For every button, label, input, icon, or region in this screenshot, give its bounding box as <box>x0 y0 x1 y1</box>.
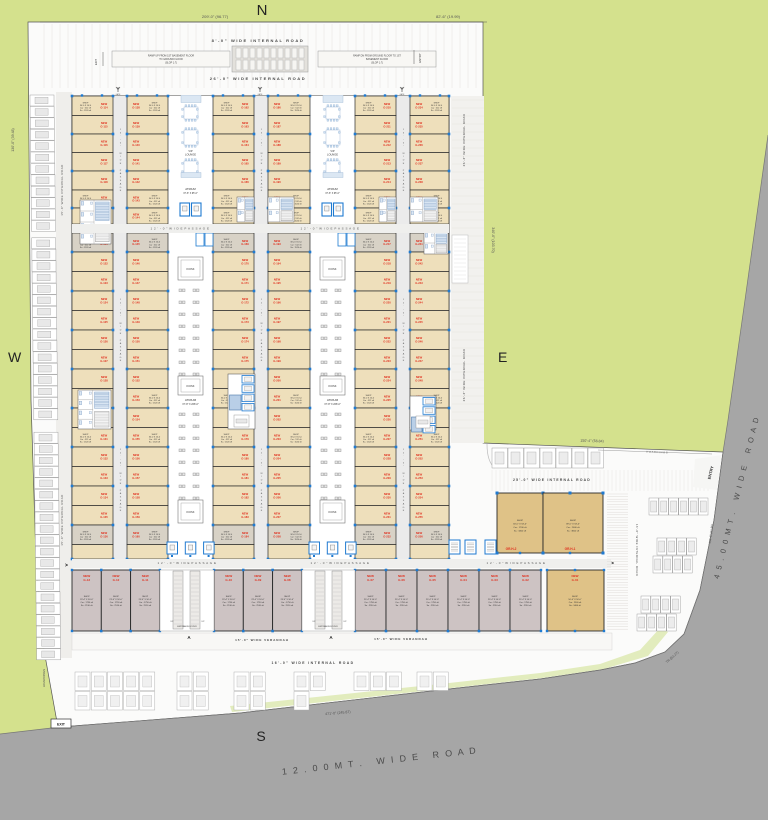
svg-text:HOARDINGS: HOARDINGS <box>42 669 46 687</box>
svg-text:G-149: G-149 <box>132 320 140 324</box>
svg-text:ENTRY: ENTRY <box>418 53 422 63</box>
svg-text:34'-0" X 53'-0": 34'-0" X 53'-0" <box>513 524 527 526</box>
svg-text:Sa : 1520 sft: Sa : 1520 sft <box>363 538 375 541</box>
svg-text:Car : 512 sft: Car : 512 sft <box>291 107 302 110</box>
svg-text:23'-4" X 50'-0": 23'-4" X 50'-0" <box>364 599 377 601</box>
svg-text:G-190: G-190 <box>273 180 281 184</box>
svg-text:G-246: G-246 <box>415 339 423 343</box>
svg-text:SHOP: SHOP <box>399 596 406 598</box>
svg-text:G-08: G-08 <box>284 578 291 582</box>
svg-text:ENTRANCE FOYER: ENTRANCE FOYER <box>177 625 197 628</box>
svg-text:Sa : 1520 sft: Sa : 1520 sft <box>221 538 233 541</box>
svg-text:30'-0 X 10'-0: 30'-0 X 10'-0 <box>221 436 233 438</box>
svg-text:UP: UP <box>201 621 205 623</box>
svg-text:30'-0 X 10'-0: 30'-0 X 10'-0 <box>290 436 302 438</box>
svg-text:KIOSK: KIOSK <box>329 267 337 271</box>
svg-text:G-159: G-159 <box>132 515 140 519</box>
svg-text:G-155: G-155 <box>132 437 140 441</box>
svg-text:G-133: G-133 <box>100 476 108 480</box>
svg-text:VIP: VIP <box>330 149 334 153</box>
svg-text:G-151: G-151 <box>132 359 140 363</box>
svg-text:SHOP: SHOP <box>226 596 233 598</box>
svg-text:15'-0" WIDE INTERNAL ROAD: 15'-0" WIDE INTERNAL ROAD <box>60 494 64 546</box>
svg-text:G-153: G-153 <box>132 398 140 402</box>
svg-text:150'-4" (56.84): 150'-4" (56.84) <box>580 439 604 444</box>
svg-text:15'-0" WIDE VERANDAH: 15'-0" WIDE VERANDAH <box>235 638 289 642</box>
svg-text:SHOP: SHOP <box>430 596 437 598</box>
svg-text:G-202: G-202 <box>273 417 281 421</box>
svg-text:Sa : 1520 sft: Sa : 1520 sft <box>149 246 161 249</box>
svg-text:Sa : 1520 sft: Sa : 1520 sft <box>149 202 161 205</box>
svg-text:Car : 512 sft: Car : 512 sft <box>221 536 232 539</box>
svg-text:SHOP: SHOP <box>461 596 468 598</box>
svg-text:23'-4" X 50'-0": 23'-4" X 50'-0" <box>488 599 501 601</box>
svg-text:KIOSK: KIOSK <box>329 384 337 388</box>
svg-text:Car : 512 sft: Car : 512 sft <box>149 243 160 246</box>
svg-text:Car : 1750 sft: Car : 1750 sft <box>139 601 152 604</box>
svg-text:G-114: G-114 <box>100 105 108 109</box>
svg-text:UP: UP <box>312 621 316 623</box>
svg-text:G-146: G-146 <box>132 261 140 265</box>
svg-text:G-232: G-232 <box>383 534 391 538</box>
svg-text:Sa : 1520 sft: Sa : 1520 sft <box>149 441 161 444</box>
svg-text:VIP: VIP <box>188 149 192 153</box>
svg-text:Car : 512 sft: Car : 512 sft <box>80 107 91 110</box>
svg-text:Sa : 1520 sft: Sa : 1520 sft <box>290 246 302 249</box>
svg-text:G-141: G-141 <box>132 161 140 165</box>
svg-text:W: W <box>8 349 22 365</box>
svg-text:Sa : 2510 sft: Sa : 2510 sft <box>81 604 93 607</box>
svg-text:G-208: G-208 <box>273 534 281 538</box>
svg-text:G-241: G-241 <box>415 242 423 246</box>
svg-text:G-243: G-243 <box>415 281 423 285</box>
svg-text:15'-0" WIDE VERANDAH: 15'-0" WIDE VERANDAH <box>374 637 428 641</box>
svg-text:1 2 ' - 0 " W I D E P A S: 1 2 ' - 0 " W I D E P A S S A G E <box>311 561 370 565</box>
svg-text:G-123: G-123 <box>100 281 108 285</box>
svg-text:Sa : 2510 sft: Sa : 2510 sft <box>110 604 122 607</box>
svg-text:G-172: G-172 <box>241 300 249 304</box>
svg-text:G-251: G-251 <box>415 437 423 441</box>
svg-text:LOUNGE: LOUNGE <box>185 153 196 157</box>
svg-text:G-181: G-181 <box>241 476 249 480</box>
svg-text:GATE: GATE <box>400 93 406 96</box>
svg-text:23'-4" X 50'-0": 23'-4" X 50'-0" <box>109 599 122 601</box>
svg-text:Sa : 2510 sft: Sa : 2510 sft <box>281 604 293 607</box>
svg-text:26'-3" WIDE INTERNAL ROAD: 26'-3" WIDE INTERNAL ROAD <box>462 348 466 401</box>
svg-text:16'-0" WIDE INTERNAL ROAD: 16'-0" WIDE INTERNAL ROAD <box>635 524 639 576</box>
svg-text:Car : 512 sft: Car : 512 sft <box>363 536 374 539</box>
svg-text:G-134: G-134 <box>100 495 108 499</box>
svg-text:SHOP: SHOP <box>572 596 579 598</box>
svg-text:Car : 512 sft: Car : 512 sft <box>291 243 302 246</box>
svg-text:Sa : 3600 sft: Sa : 3600 sft <box>567 530 580 533</box>
svg-text:30'-0 X 10'-0: 30'-0 X 10'-0 <box>80 436 92 438</box>
svg-text:G-244: G-244 <box>415 300 423 304</box>
svg-text:Car : 512 sft: Car : 512 sft <box>221 217 232 220</box>
svg-text:G-136: G-136 <box>100 534 108 538</box>
svg-text:23'-4" X 50'-0": 23'-4" X 50'-0" <box>281 599 294 601</box>
svg-text:SHOP: SHOP <box>224 102 230 104</box>
svg-text:Car : 1750 sft: Car : 1750 sft <box>222 601 235 604</box>
svg-text:G-253: G-253 <box>415 476 423 480</box>
svg-text:GATE: GATE <box>116 93 122 96</box>
svg-text:G-162: G-162 <box>241 105 249 109</box>
svg-text:30'-0 X 10'-0: 30'-0 X 10'-0 <box>363 436 375 438</box>
svg-text:G-138: G-138 <box>132 105 140 109</box>
svg-text:Sa : 2510 sft: Sa : 2510 sft <box>489 604 501 607</box>
svg-text:G-247: G-247 <box>415 359 423 363</box>
svg-text:G-07: G-07 <box>367 578 374 582</box>
svg-text:Sa : 1520 sft: Sa : 1520 sft <box>363 246 375 249</box>
svg-text:Sa : 1520 sft: Sa : 1520 sft <box>363 109 375 112</box>
svg-text:G-201: G-201 <box>273 398 281 402</box>
svg-text:Sa : 2510 sft: Sa : 2510 sft <box>427 604 439 607</box>
svg-text:G-122: G-122 <box>100 261 108 265</box>
svg-text:37'-8" X 268'-0": 37'-8" X 268'-0" <box>324 403 341 406</box>
svg-text:340'-0" (103.70): 340'-0" (103.70) <box>491 227 495 253</box>
svg-text:Sa : 1520 sft: Sa : 1520 sft <box>80 109 92 112</box>
svg-text:82'-6" (19.99): 82'-6" (19.99) <box>436 14 461 19</box>
svg-text:SHOP: SHOP <box>368 596 375 598</box>
svg-text:G-220: G-220 <box>383 300 391 304</box>
svg-text:G-170: G-170 <box>241 261 249 265</box>
svg-text:G-160: G-160 <box>132 534 140 538</box>
svg-text:G-05: G-05 <box>429 578 436 582</box>
svg-text:30'-0 X 10'-0: 30'-0 X 10'-0 <box>290 397 302 399</box>
svg-text:23'-4" X 50'-0": 23'-4" X 50'-0" <box>457 599 470 601</box>
svg-text:G-175: G-175 <box>241 359 249 363</box>
svg-text:G-238: G-238 <box>415 180 423 184</box>
svg-text:G-213: G-213 <box>383 161 391 165</box>
svg-text:G-02: G-02 <box>522 578 529 582</box>
svg-text:G-180: G-180 <box>241 456 249 460</box>
svg-text:Car : 512 sft: Car : 512 sft <box>80 536 91 539</box>
svg-text:G-237: G-237 <box>415 161 423 165</box>
svg-text:G-235: G-235 <box>415 124 423 128</box>
svg-text:Car : 512 sft: Car : 512 sft <box>149 200 160 203</box>
svg-text:G-158: G-158 <box>132 495 140 499</box>
svg-text:Car : 512 sft: Car : 512 sft <box>431 107 442 110</box>
svg-text:G-118: G-118 <box>100 180 108 184</box>
svg-text:209'-0" (96.77): 209'-0" (96.77) <box>202 14 229 19</box>
svg-text:UP: UP <box>170 621 174 623</box>
svg-text:SHOP: SHOP <box>255 596 262 598</box>
svg-text:G: G <box>120 357 122 359</box>
svg-text:G: G <box>120 187 122 189</box>
svg-text:Sa : 1520 sft: Sa : 1520 sft <box>80 246 92 249</box>
svg-text:30'-0 X 10'-0: 30'-0 X 10'-0 <box>363 397 375 399</box>
svg-text:G-145: G-145 <box>132 242 140 246</box>
svg-text:Car : 512 sft: Car : 512 sft <box>149 107 160 110</box>
svg-text:G-148: G-148 <box>132 300 140 304</box>
svg-text:Sa : 1520 sft: Sa : 1520 sft <box>221 219 233 222</box>
svg-text:G-139: G-139 <box>132 124 140 128</box>
svg-text:Sa : 3400 sft: Sa : 3400 sft <box>514 530 527 533</box>
svg-text:G-166: G-166 <box>241 180 249 184</box>
svg-text:37'-6" X 95'-0": 37'-6" X 95'-0" <box>183 193 198 195</box>
svg-text:Sa : 1520 sft: Sa : 1520 sft <box>363 219 375 222</box>
svg-text:G-227: G-227 <box>383 437 391 441</box>
svg-text:G-234: G-234 <box>415 105 423 109</box>
svg-text:G-255: G-255 <box>415 515 423 519</box>
svg-text:G: G <box>261 507 263 509</box>
svg-text:KIOSK: KIOSK <box>187 384 195 388</box>
svg-text:G-198: G-198 <box>273 339 281 343</box>
svg-text:SHOP: SHOP <box>523 596 530 598</box>
svg-text:SHOP: SHOP <box>152 102 158 104</box>
svg-text:Car : 1750 sft: Car : 1750 sft <box>519 601 532 604</box>
svg-text:ATRIUM: ATRIUM <box>327 398 339 402</box>
svg-text:30'-0 X 10'-0: 30'-0 X 10'-0 <box>149 397 161 399</box>
svg-text:EXIT: EXIT <box>57 723 66 727</box>
svg-text:G-126: G-126 <box>100 339 108 343</box>
svg-text:Car : 512 sft: Car : 512 sft <box>149 536 160 539</box>
svg-text:G: G <box>403 357 405 359</box>
svg-text:G-144: G-144 <box>132 216 140 220</box>
svg-text:26'-3" WIDE INTERNAL ROAD: 26'-3" WIDE INTERNAL ROAD <box>462 113 466 166</box>
svg-text:EXIT: EXIT <box>94 59 98 66</box>
svg-text:Sa : 1520 sft: Sa : 1520 sft <box>290 402 302 405</box>
svg-text:G-252: G-252 <box>415 456 423 460</box>
svg-text:G-157: G-157 <box>132 476 140 480</box>
svg-text:1 2 ' - 0 " W I D E P A S: 1 2 ' - 0 " W I D E P A S S A G E <box>301 227 360 231</box>
svg-text:G-199: G-199 <box>273 359 281 363</box>
svg-text:G-194: G-194 <box>273 261 281 265</box>
svg-text:25'-0" WIDE INTERNAL ROAD: 25'-0" WIDE INTERNAL ROAD <box>513 478 591 482</box>
svg-text:GR.H-2: GR.H-2 <box>506 547 517 551</box>
svg-text:G-115: G-115 <box>100 124 108 128</box>
svg-text:G-165: G-165 <box>241 161 249 165</box>
svg-text:Car : 1750 sft: Car : 1750 sft <box>110 601 123 604</box>
svg-text:Sa : 1520 sft: Sa : 1520 sft <box>149 219 161 222</box>
svg-text:G-09: G-09 <box>255 578 262 582</box>
svg-text:Sa : 2510 sft: Sa : 2510 sft <box>252 604 264 607</box>
svg-text:Sa : 1520 sft: Sa : 1520 sft <box>80 538 92 541</box>
svg-text:39'-0" X 53'-0": 39'-0" X 53'-0" <box>566 524 580 526</box>
svg-text:G-169: G-169 <box>241 242 249 246</box>
svg-text:G-125: G-125 <box>100 320 108 324</box>
svg-text:G-214: G-214 <box>383 180 391 184</box>
svg-text:Car : 512 sft: Car : 512 sft <box>221 243 232 246</box>
svg-text:50'-0" X 50'-0": 50'-0" X 50'-0" <box>568 599 581 601</box>
svg-text:G-245: G-245 <box>415 320 423 324</box>
svg-text:Car : 512 sft: Car : 512 sft <box>363 107 374 110</box>
svg-text:G-195: G-195 <box>273 281 281 285</box>
svg-text:G-193: G-193 <box>273 242 281 246</box>
svg-text:G-225: G-225 <box>383 398 391 402</box>
svg-text:GATE: GATE <box>258 93 264 96</box>
svg-text:ATRIUM: ATRIUM <box>185 187 196 191</box>
svg-text:Sa : 2510 sft: Sa : 2510 sft <box>458 604 470 607</box>
svg-text:G-189: G-189 <box>273 161 281 165</box>
svg-text:SHOP: SHOP <box>83 102 89 104</box>
svg-text:Sa : 1520 sft: Sa : 1520 sft <box>363 441 375 444</box>
svg-text:Car : 1750 sft: Car : 1750 sft <box>364 601 377 604</box>
svg-text:G-04: G-04 <box>460 578 467 582</box>
svg-text:Sa : 3400 sft: Sa : 3400 sft <box>569 604 581 607</box>
svg-text:SHOP: SHOP <box>293 102 299 104</box>
svg-text:(SLOP 1:7): (SLOP 1:7) <box>371 62 383 65</box>
svg-text:ENTRANCE FOYER: ENTRANCE FOYER <box>318 625 338 628</box>
svg-text:Car : 512 sft: Car : 512 sft <box>291 536 302 539</box>
svg-text:Car : 512 sft: Car : 512 sft <box>363 217 374 220</box>
svg-text:130'-0" (39.48): 130'-0" (39.48) <box>11 128 15 152</box>
svg-text:G-140: G-140 <box>132 143 140 147</box>
svg-text:Sa : 1520 sft: Sa : 1520 sft <box>290 538 302 541</box>
svg-text:Sa : 1520 sft: Sa : 1520 sft <box>363 202 375 205</box>
svg-text:SHOP: SHOP <box>84 596 91 598</box>
svg-text:G-03: G-03 <box>491 578 498 582</box>
svg-text:G-219: G-219 <box>383 281 391 285</box>
svg-text:1 2 ' - 0 " W I D E P A S: 1 2 ' - 0 " W I D E P A S S A G E <box>487 561 546 565</box>
svg-text:Sa : 2510 sft: Sa : 2510 sft <box>396 604 408 607</box>
svg-text:Sa : 1520 sft: Sa : 1520 sft <box>431 109 443 112</box>
svg-text:G-256: G-256 <box>415 534 423 538</box>
svg-text:Car : 512 sft: Car : 512 sft <box>363 200 374 203</box>
svg-text:G-174: G-174 <box>241 339 249 343</box>
svg-text:G-254: G-254 <box>415 495 423 499</box>
svg-text:G-183: G-183 <box>241 515 249 519</box>
svg-text:Car : 1750 sft: Car : 1750 sft <box>281 601 294 604</box>
svg-text:Sa : 2510 sft: Sa : 2510 sft <box>520 604 532 607</box>
svg-text:37'-6" X 95'-0": 37'-6" X 95'-0" <box>325 193 340 195</box>
svg-text:G-226: G-226 <box>383 417 391 421</box>
svg-text:G-150: G-150 <box>132 339 140 343</box>
svg-text:Sa : 1520 sft: Sa : 1520 sft <box>149 402 161 405</box>
svg-text:SHOP: SHOP <box>570 520 577 522</box>
svg-text:G-171: G-171 <box>241 281 249 285</box>
svg-text:S: S <box>256 728 265 744</box>
svg-text:G-229: G-229 <box>383 476 391 480</box>
svg-text:KIOSK: KIOSK <box>187 510 195 514</box>
svg-text:G-154: G-154 <box>132 417 140 421</box>
svg-text:G-205: G-205 <box>273 476 281 480</box>
svg-text:Sa : 1520 sft: Sa : 1520 sft <box>221 246 233 249</box>
svg-text:Sa : 2510 sft: Sa : 2510 sft <box>365 604 377 607</box>
svg-text:SHOP: SHOP <box>434 102 440 104</box>
svg-text:Sa : 1520 sft: Sa : 1520 sft <box>363 402 375 405</box>
svg-text:G-186: G-186 <box>273 105 281 109</box>
svg-text:G-13: G-13 <box>83 578 90 582</box>
svg-text:Sa : 1520 sft: Sa : 1520 sft <box>221 202 233 205</box>
svg-text:G-188: G-188 <box>273 143 281 147</box>
svg-text:G: G <box>261 357 263 359</box>
svg-text:G-187: G-187 <box>273 124 281 128</box>
svg-text:Sa : 1520 sft: Sa : 1520 sft <box>290 109 302 112</box>
svg-text:N: N <box>257 2 268 19</box>
svg-text:Car : 1750 sft: Car : 1750 sft <box>252 601 265 604</box>
svg-text:G: G <box>403 507 405 509</box>
svg-text:G-184: G-184 <box>241 534 249 538</box>
svg-text:G-223: G-223 <box>383 359 391 363</box>
svg-text:G-156: G-156 <box>132 456 140 460</box>
svg-text:G-212: G-212 <box>383 143 391 147</box>
svg-text:37'-8" X 268'-0": 37'-8" X 268'-0" <box>182 403 199 406</box>
svg-text:23'-4" X 50'-0": 23'-4" X 50'-0" <box>426 599 439 601</box>
svg-text:Sa : 1520 sft: Sa : 1520 sft <box>221 109 233 112</box>
svg-text:Car : 1750 sft: Car : 1750 sft <box>488 601 501 604</box>
svg-text:G-236: G-236 <box>415 143 423 147</box>
svg-text:G-11: G-11 <box>142 578 149 582</box>
svg-text:G-128: G-128 <box>100 378 108 382</box>
svg-text:G-117: G-117 <box>100 161 108 165</box>
svg-text:G-179: G-179 <box>241 437 249 441</box>
svg-text:Sa : 1520 sft: Sa : 1520 sft <box>221 441 233 444</box>
svg-text:KIOSK: KIOSK <box>187 267 195 271</box>
svg-text:G-173: G-173 <box>241 320 249 324</box>
svg-text:H O A R D I N G S: H O A R D I N G S <box>646 450 668 455</box>
svg-text:G-127: G-127 <box>100 359 108 363</box>
svg-text:G-163: G-163 <box>241 124 249 128</box>
svg-text:Sa : 1520 sft: Sa : 1520 sft <box>431 441 443 444</box>
svg-text:G-206: G-206 <box>273 495 281 499</box>
svg-text:G-204: G-204 <box>273 456 281 460</box>
svg-text:ATRIUM: ATRIUM <box>185 398 197 402</box>
svg-text:G-197: G-197 <box>273 320 281 324</box>
svg-text:SHOP: SHOP <box>492 596 499 598</box>
svg-text:G-231: G-231 <box>383 515 391 519</box>
svg-text:G-196: G-196 <box>273 300 281 304</box>
svg-text:G-12: G-12 <box>113 578 120 582</box>
svg-text:G-217: G-217 <box>383 242 391 246</box>
svg-text:26'-0" WIDE INTERNAL ROAD: 26'-0" WIDE INTERNAL ROAD <box>210 76 307 81</box>
svg-text:Car : 512 sft: Car : 512 sft <box>221 200 232 203</box>
svg-text:E: E <box>498 349 507 365</box>
svg-text:G-147: G-147 <box>132 281 140 285</box>
svg-text:23'-4" X 50'-0": 23'-4" X 50'-0" <box>395 599 408 601</box>
svg-text:Car : 512 sft: Car : 512 sft <box>221 107 232 110</box>
svg-text:G-131: G-131 <box>100 437 108 441</box>
svg-text:G-210: G-210 <box>383 105 391 109</box>
svg-text:G-06: G-06 <box>398 578 405 582</box>
svg-text:1 2 ' - 0 " W I D E P A S: 1 2 ' - 0 " W I D E P A S S A G E <box>158 561 217 565</box>
svg-text:G: G <box>403 187 405 189</box>
svg-text:G-143: G-143 <box>132 199 140 203</box>
svg-text:G-203: G-203 <box>273 437 281 441</box>
svg-text:Sa : 2510 sft: Sa : 2510 sft <box>139 604 151 607</box>
svg-text:Car : 1750 sft: Car : 1750 sft <box>395 601 408 604</box>
svg-text:Sa : 1520 sft: Sa : 1520 sft <box>80 441 92 444</box>
svg-text:Sa : 2510 sft: Sa : 2510 sft <box>223 604 235 607</box>
svg-text:G-116: G-116 <box>100 143 108 147</box>
svg-text:G-222: G-222 <box>383 339 391 343</box>
svg-text:SHOP: SHOP <box>284 596 291 598</box>
svg-text:Sa : 1520 sft: Sa : 1520 sft <box>149 109 161 112</box>
svg-text:G-142: G-142 <box>132 180 140 184</box>
svg-text:G: G <box>261 187 263 189</box>
svg-text:SHOP: SHOP <box>113 596 120 598</box>
svg-text:Car : 1750 sft: Car : 1750 sft <box>457 601 470 604</box>
svg-text:SHOP: SHOP <box>366 102 372 104</box>
svg-text:UP: UP <box>343 621 347 623</box>
svg-text:Car : 1700 sft: Car : 1700 sft <box>513 526 527 529</box>
svg-text:Car : 512 sft: Car : 512 sft <box>149 217 160 220</box>
svg-text:GR.H-1: GR.H-1 <box>565 547 576 551</box>
svg-text:G-221: G-221 <box>383 320 391 324</box>
svg-text:G-164: G-164 <box>241 143 249 147</box>
svg-text:G-224: G-224 <box>383 378 391 382</box>
svg-text:G-124: G-124 <box>100 300 108 304</box>
svg-text:G-230: G-230 <box>383 495 391 499</box>
svg-text:G-211: G-211 <box>383 124 391 128</box>
svg-text:Sa : 1520 sft: Sa : 1520 sft <box>290 441 302 444</box>
svg-text:Sa : 1520 sft: Sa : 1520 sft <box>431 538 443 541</box>
svg-text:G-01: G-01 <box>572 578 579 582</box>
svg-text:G-200: G-200 <box>273 378 281 382</box>
svg-text:30'-0 X 10'-0: 30'-0 X 10'-0 <box>149 436 161 438</box>
svg-text:G-152: G-152 <box>132 378 140 382</box>
svg-text:Car : 512 sft: Car : 512 sft <box>363 243 374 246</box>
